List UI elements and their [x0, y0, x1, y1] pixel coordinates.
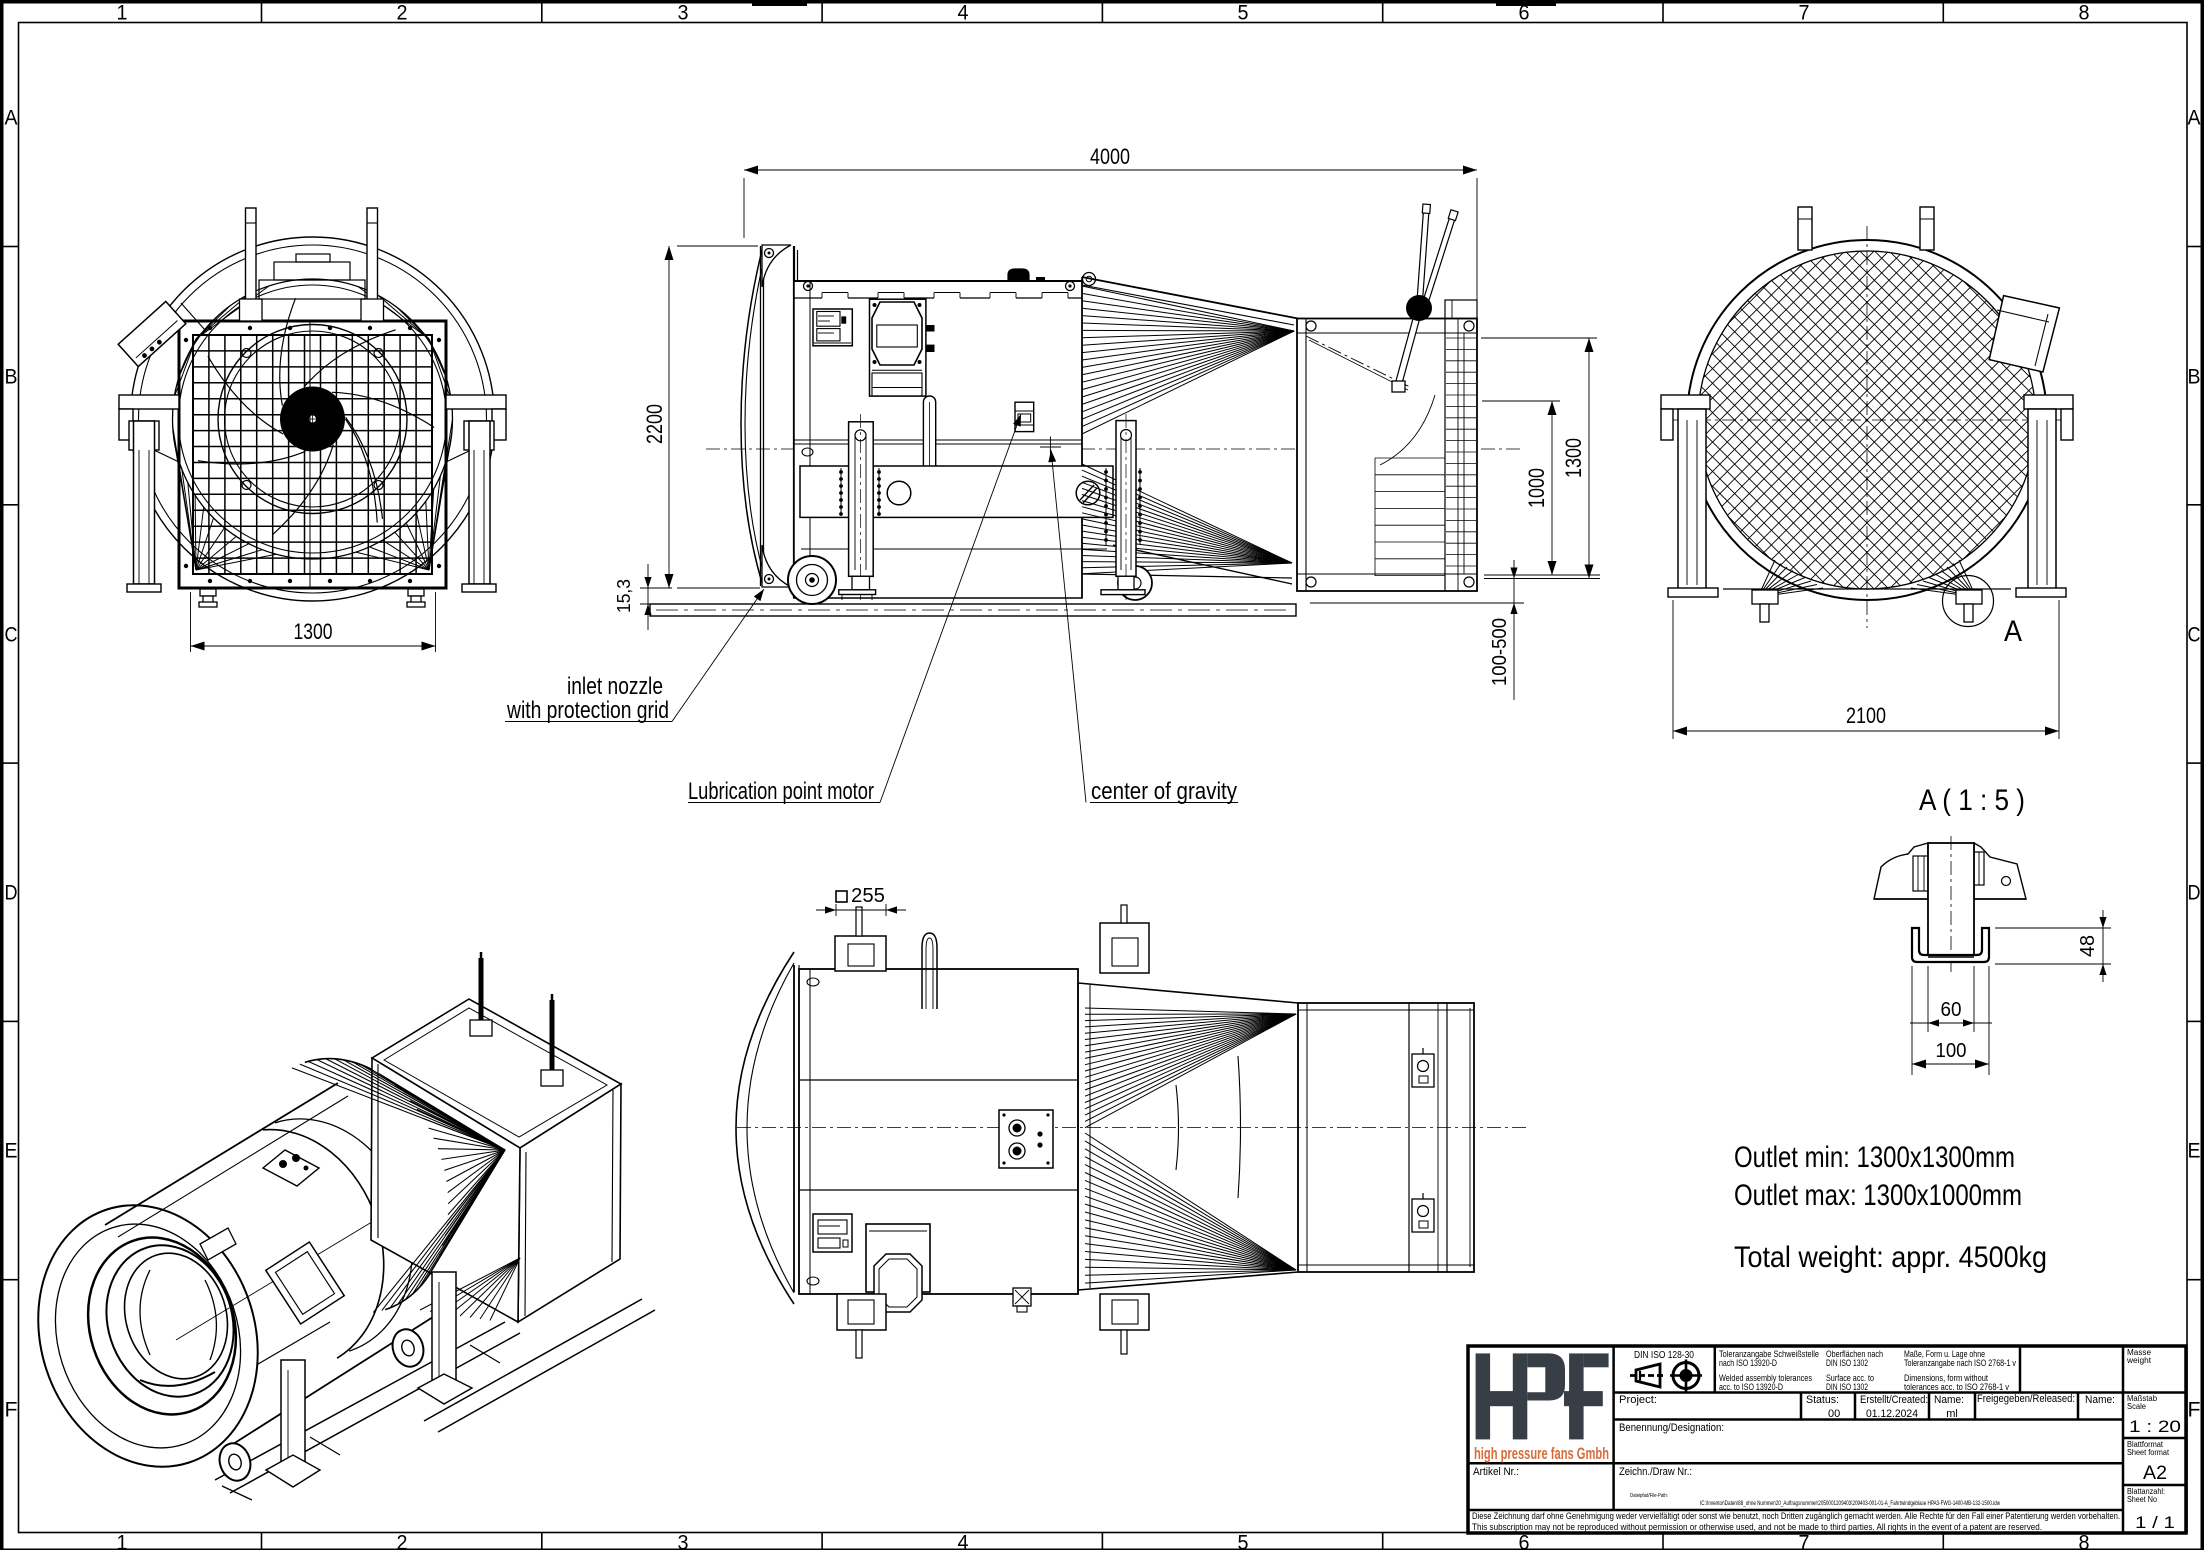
svg-text:1: 1 — [117, 1532, 128, 1550]
svg-text:1 : 20: 1 : 20 — [2129, 1417, 2181, 1436]
svg-text:DIN ISO 128-30: DIN ISO 128-30 — [1634, 1349, 1694, 1361]
svg-text:2: 2 — [397, 2, 408, 25]
svg-text:IC:\Inventor\Daten\88_ohne Num: IC:\Inventor\Daten\88_ohne Nummer\20_Auf… — [1700, 1501, 2000, 1507]
svg-text:48: 48 — [2077, 935, 2099, 957]
svg-text:Benennung/Designation:: Benennung/Designation: — [1619, 1422, 1724, 1434]
svg-text:A: A — [2188, 107, 2201, 130]
svg-text:E: E — [5, 1140, 18, 1163]
svg-text:7: 7 — [1799, 2, 1810, 25]
svg-text:3: 3 — [678, 1532, 689, 1550]
svg-text:00: 00 — [1828, 1408, 1840, 1420]
svg-text:3: 3 — [678, 2, 689, 25]
svg-text:F: F — [2188, 1399, 2201, 1422]
svg-text:01.12.2024: 01.12.2024 — [1866, 1408, 1918, 1420]
svg-text:Toleranzangabe nach ISO 2768-1: Toleranzangabe nach ISO 2768-1 v — [1904, 1358, 2016, 1368]
svg-text:Erstellt/Created:: Erstellt/Created: — [1860, 1394, 1928, 1406]
svg-text:acc. to ISO 13920-D: acc. to ISO 13920-D — [1719, 1382, 1783, 1392]
svg-text:inlet nozzle: inlet nozzle — [567, 673, 663, 700]
svg-text:4: 4 — [958, 1532, 969, 1550]
svg-text:center of gravity: center of gravity — [1091, 778, 1237, 805]
svg-text:5: 5 — [1238, 1532, 1249, 1550]
svg-text:tolerances acc. to ISO 2768-1: tolerances acc. to ISO 2768-1 v — [1904, 1382, 2010, 1392]
svg-text:4: 4 — [958, 2, 969, 25]
svg-text:D: D — [2188, 882, 2201, 905]
svg-text:8: 8 — [2079, 2, 2090, 25]
svg-text:D: D — [5, 882, 18, 905]
svg-text:A2: A2 — [2143, 1463, 2167, 1484]
svg-text:nach ISO 13920-D: nach ISO 13920-D — [1719, 1358, 1777, 1368]
svg-text:Sheet No: Sheet No — [2127, 1495, 2157, 1504]
svg-text:2200: 2200 — [642, 404, 667, 444]
svg-text:ml: ml — [1946, 1408, 1958, 1420]
svg-text:C: C — [5, 624, 18, 647]
svg-text:Project:: Project: — [1619, 1394, 1657, 1406]
svg-text:Artikel Nr.:: Artikel Nr.: — [1473, 1466, 1519, 1478]
svg-text:Scale: Scale — [2127, 1402, 2147, 1411]
svg-text:1: 1 — [117, 2, 128, 25]
svg-text:This subscription may not be r: This subscription may not be reproduced … — [1472, 1522, 2042, 1533]
svg-text:DIN ISO 1302: DIN ISO 1302 — [1826, 1382, 1868, 1392]
svg-text:Name:: Name: — [2085, 1394, 2115, 1406]
svg-text:Name:: Name: — [1934, 1394, 1964, 1406]
svg-text:2100: 2100 — [1846, 703, 1886, 728]
svg-text:15,3: 15,3 — [614, 579, 634, 613]
svg-text:60: 60 — [1941, 999, 1962, 1021]
svg-text:A ( 1 : 5 ): A ( 1 : 5 ) — [1919, 784, 2025, 817]
svg-text:weight: weight — [2126, 1356, 2152, 1365]
svg-text:Zeichn./Draw Nr.:: Zeichn./Draw Nr.: — [1619, 1466, 1692, 1478]
svg-text:B: B — [5, 366, 18, 389]
svg-text:Lubrication point motor: Lubrication point motor — [688, 778, 874, 805]
svg-text:1000: 1000 — [1524, 468, 1549, 508]
svg-text:1 / 1: 1 / 1 — [2135, 1513, 2175, 1532]
svg-text:Dateipfad/File-Path:: Dateipfad/File-Path: — [1630, 1493, 1668, 1499]
svg-text:E: E — [2188, 1140, 2201, 1163]
svg-text:Sheet format: Sheet format — [2127, 1448, 2170, 1457]
svg-text:Diese Zeichnung darf ohne Gene: Diese Zeichnung darf ohne Genehmigung we… — [1472, 1511, 2120, 1522]
svg-text:2: 2 — [397, 1532, 408, 1550]
svg-text:255: 255 — [851, 885, 885, 907]
svg-text:Freigegeben/Released:: Freigegeben/Released: — [1977, 1393, 2075, 1405]
svg-text:DIN ISO 1302: DIN ISO 1302 — [1826, 1358, 1868, 1368]
svg-text:100: 100 — [1936, 1040, 1967, 1062]
svg-text:C: C — [2188, 624, 2201, 647]
svg-text:1300: 1300 — [1561, 438, 1586, 478]
svg-text:5: 5 — [1238, 2, 1249, 25]
svg-text:with protection grid: with protection grid — [506, 697, 669, 724]
svg-text:A: A — [2004, 615, 2022, 648]
svg-text:6: 6 — [1519, 2, 1530, 25]
svg-text:F: F — [5, 1399, 18, 1422]
svg-text:B: B — [2188, 366, 2201, 389]
svg-text:100-500: 100-500 — [1489, 618, 1511, 686]
svg-text:A: A — [5, 107, 18, 130]
svg-text:Total weight: appr. 4500kg: Total weight: appr. 4500kg — [1734, 1241, 2047, 1274]
svg-text:Outlet min: 1300x1300mm: Outlet min: 1300x1300mm — [1734, 1141, 2015, 1174]
svg-text:Outlet max: 1300x1000mm: Outlet max: 1300x1000mm — [1734, 1179, 2022, 1212]
svg-text:Status:: Status: — [1806, 1394, 1839, 1406]
svg-text:1300: 1300 — [294, 619, 333, 644]
svg-text:4000: 4000 — [1090, 144, 1130, 169]
svg-text:high pressure fans Gmbh: high pressure fans Gmbh — [1474, 1445, 1609, 1463]
